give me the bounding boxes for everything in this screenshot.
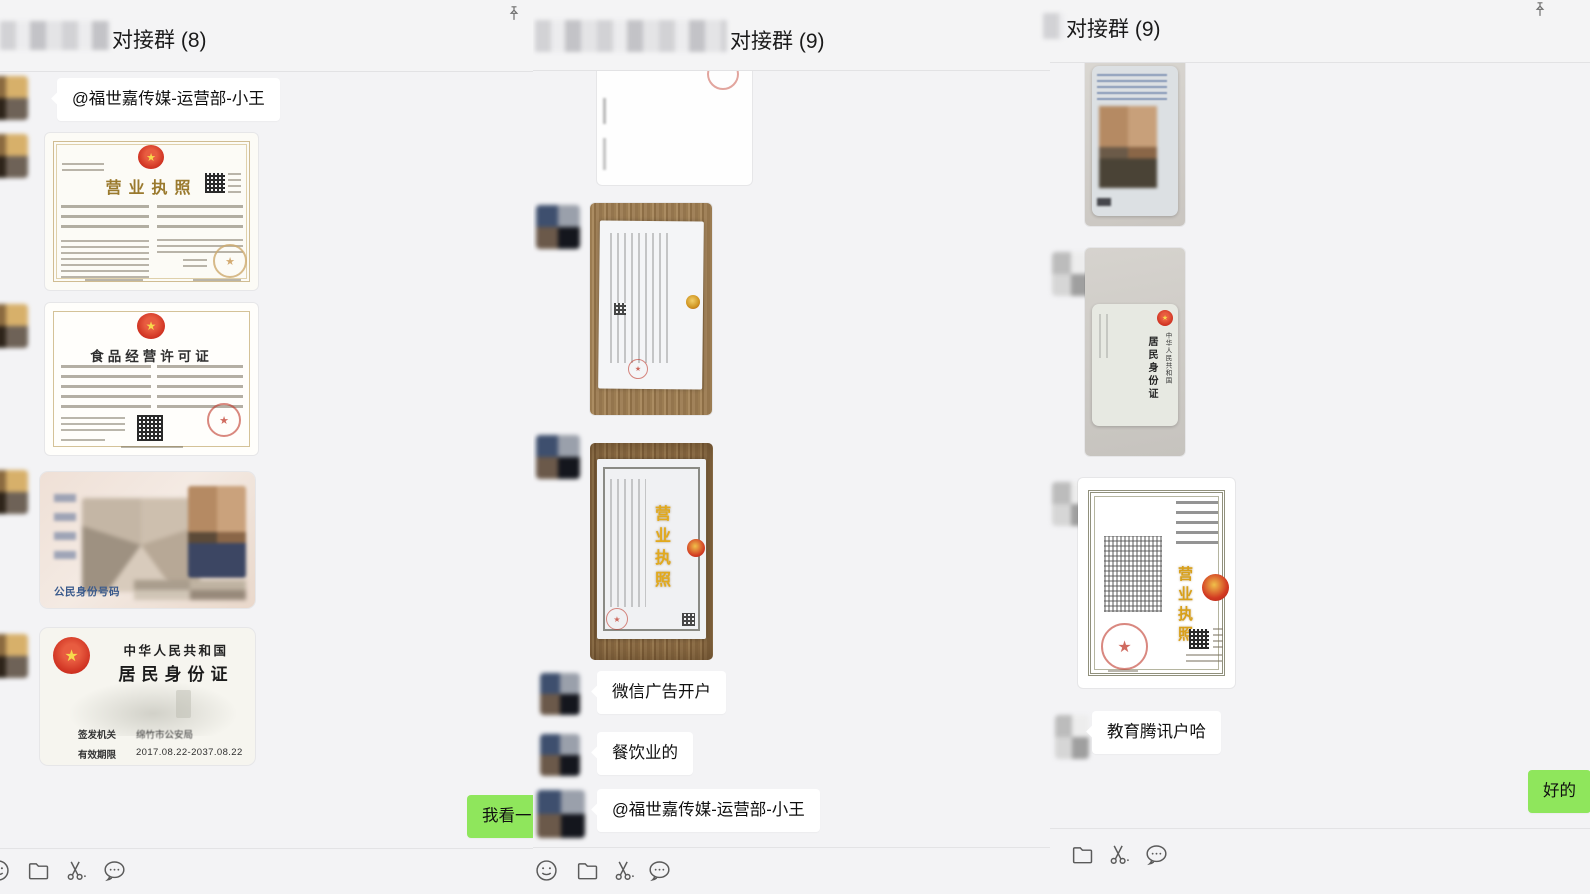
great-wall-tower — [176, 690, 191, 718]
user-avatar[interactable] — [0, 134, 28, 178]
food-permit-image[interactable]: ★ 食品经营许可证 ★ — [45, 303, 258, 455]
rotated-info-marks — [1099, 314, 1111, 358]
id-label-blur — [54, 513, 76, 521]
user-avatar[interactable] — [537, 790, 585, 838]
id-back-photo[interactable]: ★ 中华人民共和国 居民身份证 — [1085, 248, 1185, 456]
chat-window-right: 对接群 (9) ★ 中华人民共和国 居民身份证 营业执照 ★ — [1050, 0, 1590, 894]
message-bubble: 微信广告开户 — [597, 671, 726, 714]
group-name-redacted — [535, 20, 727, 52]
validity-value: 2017.08.22-2037.08.22 — [136, 747, 243, 758]
chat-title: 对接群 (9) — [1066, 13, 1161, 43]
id-label-blur — [54, 551, 76, 559]
validity-line — [61, 439, 105, 445]
emoji-icon[interactable] — [0, 858, 11, 883]
chat-bubble-icon[interactable] — [1144, 842, 1169, 867]
rotated-blue-text — [1097, 72, 1167, 100]
chat-title: 对接群 (9) — [730, 25, 825, 55]
document-edge-mark — [603, 98, 606, 124]
folder-icon[interactable] — [575, 858, 600, 883]
gold-red-emblem-sticker — [687, 539, 705, 557]
sent-message-bubble: 好的 — [1528, 770, 1590, 813]
id-card-name-rotated: 居民身份证 — [1144, 336, 1159, 401]
chat-window-middle: 对接群 (9) ★ 营业执照 ★ 微信广告开户 餐饮业的 @福世嘉传媒-运 — [533, 0, 1050, 894]
id-photo-mosaic — [188, 486, 246, 578]
id-card-front-image[interactable]: 公民身份号码 — [40, 472, 255, 608]
group-name-redacted — [1043, 13, 1064, 39]
user-avatar[interactable] — [1055, 715, 1089, 759]
footer-line — [121, 446, 183, 449]
rotated-text-columns — [610, 233, 668, 363]
chat-header-right: 对接群 (9) — [1050, 0, 1590, 63]
id-photo-mosaic — [1099, 106, 1157, 188]
business-license-photo[interactable]: 营业执照 ★ — [590, 443, 713, 660]
wechat-app: 对接群 (8) @福世嘉传媒-运营部-小王 ★ 营业执照 ★ — [0, 0, 1590, 894]
id-number-label: 公民身份号码 — [54, 584, 120, 599]
rotated-dense-text-block — [1104, 536, 1162, 612]
national-emblem: ★ — [53, 637, 90, 674]
red-seal: ★ — [213, 244, 247, 278]
input-toolbar-divider — [0, 848, 533, 850]
user-avatar[interactable] — [0, 470, 28, 514]
user-avatar[interactable] — [536, 205, 580, 249]
license-gold-title: 营业执照 — [648, 505, 672, 593]
chat-bubble-icon[interactable] — [102, 858, 127, 883]
national-emblem: ★ — [137, 313, 165, 339]
id-front-photo[interactable] — [1085, 58, 1185, 226]
national-emblem: ★ — [1157, 310, 1173, 326]
id-country-rotated: 中华人民共和国 — [1162, 332, 1172, 385]
rotated-header-lines — [1176, 500, 1218, 544]
folder-icon[interactable] — [26, 858, 51, 883]
id-label-blur — [54, 494, 76, 502]
message-bubble: 餐饮业的 — [597, 732, 693, 775]
rotated-text-columns — [610, 479, 646, 607]
red-seal: ★ — [1101, 623, 1148, 670]
id-info-mosaic — [82, 498, 200, 592]
message-bubble: @福世嘉传媒-运营部-小王 — [57, 78, 280, 121]
footer-line-right — [193, 279, 241, 282]
certificate-photo[interactable]: ★ — [590, 203, 712, 415]
license-scope-paragraph — [61, 240, 149, 280]
issuer-label: 签发机关 — [78, 727, 116, 741]
red-seal: ★ — [606, 608, 628, 630]
id-number-mosaic — [134, 580, 246, 600]
user-avatar[interactable] — [0, 634, 28, 678]
qr-code — [614, 303, 626, 315]
user-avatar[interactable] — [0, 304, 28, 348]
business-license-scan[interactable]: 营业执照 ★ — [1078, 478, 1235, 688]
issuer-value: 绵竹市公安局 — [136, 727, 193, 741]
permit-fields-left — [61, 365, 151, 413]
user-avatar[interactable] — [540, 734, 580, 776]
input-toolbar-divider — [1050, 828, 1590, 830]
red-seal: ★ — [207, 403, 241, 437]
qr-side-text — [228, 173, 241, 193]
validity-label: 有效期限 — [78, 747, 116, 761]
red-gold-emblem-sticker — [1202, 574, 1229, 601]
chat-bubble-icon[interactable] — [647, 858, 672, 883]
permit-title: 食品经营许可证 — [45, 345, 258, 365]
dark-mark — [1097, 198, 1111, 206]
permit-extra-lines — [61, 417, 125, 431]
footer-line — [85, 279, 143, 282]
national-emblem: ★ — [138, 145, 164, 169]
rotated-small-lines — [1186, 654, 1222, 666]
chat-header-middle: 对接群 (9) — [533, 0, 1050, 71]
qr-code — [1189, 629, 1209, 649]
business-license-image[interactable]: ★ 营业执照 ★ — [45, 133, 258, 290]
scissors-screenshot-icon[interactable] — [611, 858, 636, 883]
user-avatar[interactable] — [0, 76, 28, 120]
pin-icon — [1529, 0, 1551, 22]
emoji-icon[interactable] — [534, 858, 559, 883]
id-card-back-image[interactable]: ★ 中华人民共和国 居民身份证 签发机关 绵竹市公安局 有效期限 2017.08… — [40, 628, 255, 765]
chat-title: 对接群 (8) — [112, 24, 207, 54]
chat-header-left: 对接群 (8) — [0, 0, 533, 72]
message-bubble: @福世嘉传媒-运营部-小王 — [597, 789, 820, 832]
gold-emblem-sticker — [686, 295, 700, 309]
chat-window-left: 对接群 (8) @福世嘉传媒-运营部-小王 ★ 营业执照 ★ — [0, 0, 533, 894]
message-bubble: 教育腾讯户哈 — [1092, 711, 1221, 754]
input-toolbar-divider — [533, 847, 1050, 849]
pin-icon — [503, 4, 525, 26]
issue-date — [183, 259, 207, 268]
user-avatar[interactable] — [536, 435, 580, 479]
group-name-redacted — [0, 21, 110, 50]
document-edge-mark — [603, 138, 606, 170]
qr-code — [205, 173, 225, 193]
license-code-lines — [62, 163, 104, 173]
id-label-blur — [54, 532, 76, 540]
qr-side-text — [1213, 628, 1223, 652]
folder-icon[interactable] — [1070, 842, 1095, 867]
license-title: 营业执照 — [45, 174, 258, 198]
qr-code — [137, 415, 163, 441]
id-country: 中华人民共和国 — [106, 640, 246, 659]
license-fields-right — [157, 205, 243, 235]
footer-marks — [1108, 670, 1138, 675]
license-fields-left — [61, 205, 149, 235]
user-avatar[interactable] — [540, 673, 580, 715]
scissors-screenshot-icon[interactable] — [63, 858, 88, 883]
scissors-screenshot-icon[interactable] — [1106, 842, 1131, 867]
sent-message-bubble: 我看一 — [467, 795, 533, 838]
red-seal: ★ — [628, 359, 648, 379]
qr-code — [682, 613, 695, 626]
